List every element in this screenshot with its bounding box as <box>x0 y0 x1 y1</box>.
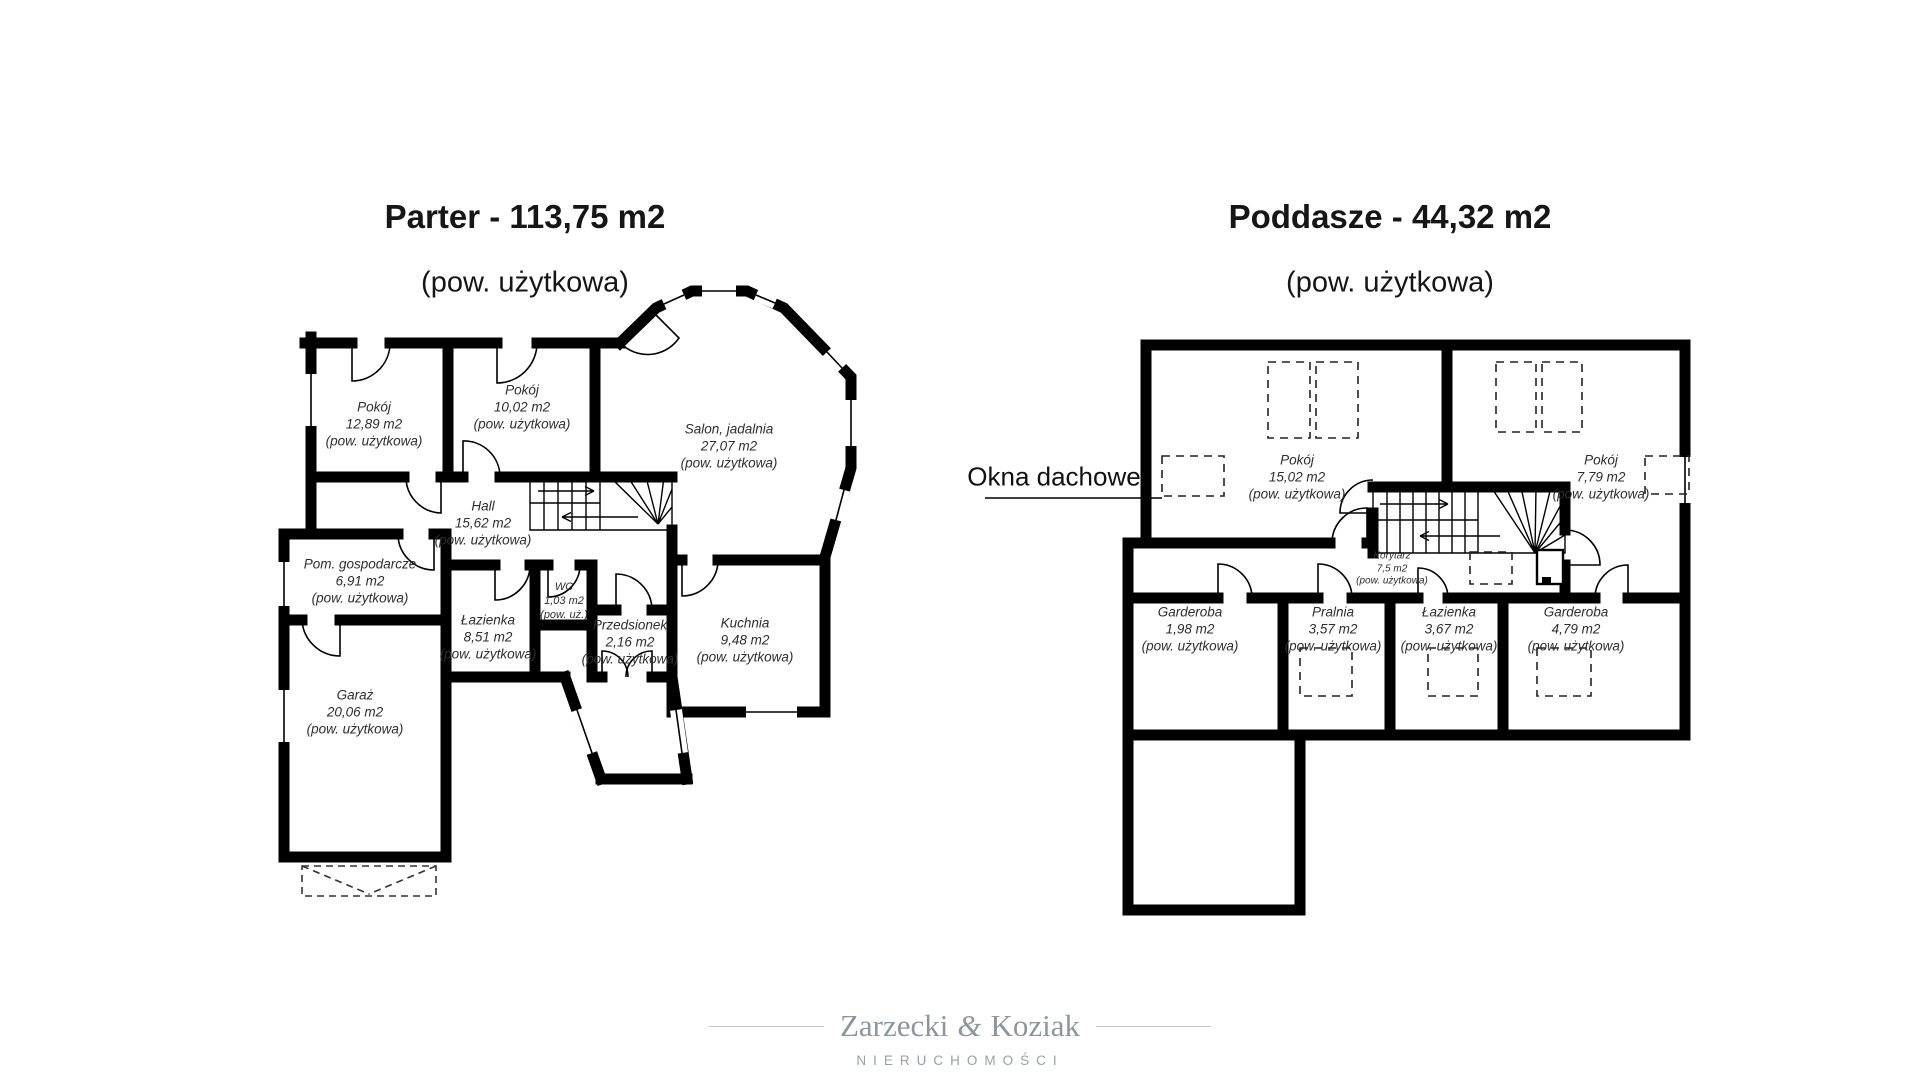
room-label-garaz: Garaż 20,06 m2 (pow. użytkowa) <box>307 687 404 738</box>
room-note: (pow. użytkowa) <box>1249 486 1346 503</box>
room-area: 10,02 m2 <box>474 399 571 416</box>
room-name: Pokój <box>1553 452 1650 469</box>
room-area: 12,89 m2 <box>326 416 423 433</box>
watermark-line-left <box>709 1026 824 1027</box>
room-note: (pow. użytkowa) <box>435 532 532 549</box>
room-label-lazienka-poddasze: Łazienka 3,67 m2 (pow. użytkowa) <box>1401 604 1498 655</box>
room-area: 1,03 m2 <box>540 594 588 608</box>
parter-stairs <box>530 477 672 530</box>
room-area: 7,79 m2 <box>1553 469 1650 486</box>
room-note: (pow. użytkowa) <box>1553 486 1650 503</box>
room-area: 20,06 m2 <box>307 704 404 721</box>
room-name: Kuchnia <box>697 615 794 632</box>
watermark-ampersand: & <box>957 1008 981 1044</box>
room-note: (pow. użytkowa) <box>474 416 571 433</box>
room-label-pokoj-10-02: Pokój 10,02 m2 (pow. użytkowa) <box>474 382 571 433</box>
room-name: Łazienka <box>1401 604 1498 621</box>
parter-title: Parter - 113,75 m2 <box>385 198 666 236</box>
room-area: 15,02 m2 <box>1249 469 1346 486</box>
room-name: Pralnia <box>1285 604 1382 621</box>
chimney-symbol <box>1537 550 1563 584</box>
watermark-name-right: Koziak <box>991 1008 1081 1044</box>
room-name: Pokój <box>1249 452 1346 469</box>
room-note: (pow. użytkowa) <box>697 649 794 666</box>
room-area: 15,62 m2 <box>435 515 532 532</box>
room-name: WC <box>540 580 588 594</box>
watermark-name-left: Zarzecki <box>840 1008 948 1044</box>
room-name: Pom. gospodarcze <box>304 556 417 573</box>
room-name: Salon, jadalnia <box>681 421 778 438</box>
room-note: (pow. użytkowa) <box>307 721 404 738</box>
room-note: (pow. użytkowa) <box>1401 638 1498 655</box>
room-area: 6,91 m2 <box>304 573 417 590</box>
room-note: (pow. użytkowa) <box>681 455 778 472</box>
room-note: (pow. użytkowa) <box>1528 638 1625 655</box>
parter-subtitle: (pow. użytkowa) <box>421 267 629 300</box>
room-area: 4,79 m2 <box>1528 621 1625 638</box>
room-name: Korytarz <box>1356 550 1428 563</box>
room-name: Pokój <box>474 382 571 399</box>
room-area: 2,16 m2 <box>582 634 679 651</box>
room-note: (pow. użytkowa) <box>582 651 679 668</box>
room-label-pokoj-15-02: Pokój 15,02 m2 (pow. użytkowa) <box>1249 452 1346 503</box>
poddasze-stairs <box>1373 487 1565 553</box>
room-label-lazienka-parter: Łazienka 8,51 m2 (pow. użytkowa) <box>440 612 537 663</box>
watermark-line-right <box>1096 1026 1211 1027</box>
room-label-hall: Hall 15,62 m2 (pow. użytkowa) <box>435 498 532 549</box>
garage-door-dashed <box>302 866 436 896</box>
floorplan-linework <box>0 0 1920 1080</box>
watermark: Zarzecki & Koziak NIERUCHOMOŚCI <box>709 1008 1211 1068</box>
room-area: 8,51 m2 <box>440 629 537 646</box>
room-label-korytarz: Korytarz 7,5 m2 (pow. użytkowa) <box>1356 550 1428 588</box>
watermark-row: Zarzecki & Koziak <box>709 1008 1211 1044</box>
poddasze-title: Poddasze - 44,32 m2 <box>1229 198 1552 236</box>
poddasze-subtitle: (pow. użytkowa) <box>1286 267 1494 300</box>
okna-dachowe-label: Okna dachowe <box>967 462 1140 493</box>
room-label-pralnia: Pralnia 3,57 m2 (pow. użytkowa) <box>1285 604 1382 655</box>
room-label-kuchnia: Kuchnia 9,48 m2 (pow. użytkowa) <box>697 615 794 666</box>
room-label-pom-gospodarcze: Pom. gospodarcze 6,91 m2 (pow. użytkowa) <box>304 556 417 607</box>
room-label-przedsionek: Przedsionek 2,16 m2 (pow. użytkowa) <box>582 617 679 668</box>
room-label-garderoba-4-79: Garderoba 4,79 m2 (pow. użytkowa) <box>1528 604 1625 655</box>
room-name: Garaż <box>307 687 404 704</box>
room-note: (pow. użytkowa) <box>1356 575 1428 588</box>
room-name: Garderoba <box>1142 604 1239 621</box>
room-name: Pokój <box>326 399 423 416</box>
room-note: (pow. użytkowa) <box>304 590 417 607</box>
watermark-name: Zarzecki & Koziak <box>840 1008 1080 1044</box>
room-area: 7,5 m2 <box>1356 563 1428 576</box>
room-area: 1,98 m2 <box>1142 621 1239 638</box>
room-note: (pow. użytkowa) <box>1142 638 1239 655</box>
room-note: (pow. użytkowa) <box>1285 638 1382 655</box>
room-name: Garderoba <box>1528 604 1625 621</box>
room-area: 9,48 m2 <box>697 632 794 649</box>
room-area: 3,67 m2 <box>1401 621 1498 638</box>
room-area: 27,07 m2 <box>681 438 778 455</box>
room-label-garderoba-1-98: Garderoba 1,98 m2 (pow. użytkowa) <box>1142 604 1239 655</box>
watermark-tagline: NIERUCHOMOŚCI <box>709 1053 1211 1068</box>
room-note: (pow. użytkowa) <box>326 433 423 450</box>
room-name: Przedsionek <box>582 617 679 634</box>
room-label-pokoj-12-89: Pokój 12,89 m2 (pow. użytkowa) <box>326 399 423 450</box>
room-area: 3,57 m2 <box>1285 621 1382 638</box>
room-name: Łazienka <box>440 612 537 629</box>
room-note: (pow. użytkowa) <box>440 646 537 663</box>
floorplan-sheet: Parter - 113,75 m2 (pow. użytkowa) Podda… <box>0 0 1920 1080</box>
room-label-salon-jadalnia: Salon, jadalnia 27,07 m2 (pow. użytkowa) <box>681 421 778 472</box>
room-name: Hall <box>435 498 532 515</box>
room-label-pokoj-7-79: Pokój 7,79 m2 (pow. użytkowa) <box>1553 452 1650 503</box>
